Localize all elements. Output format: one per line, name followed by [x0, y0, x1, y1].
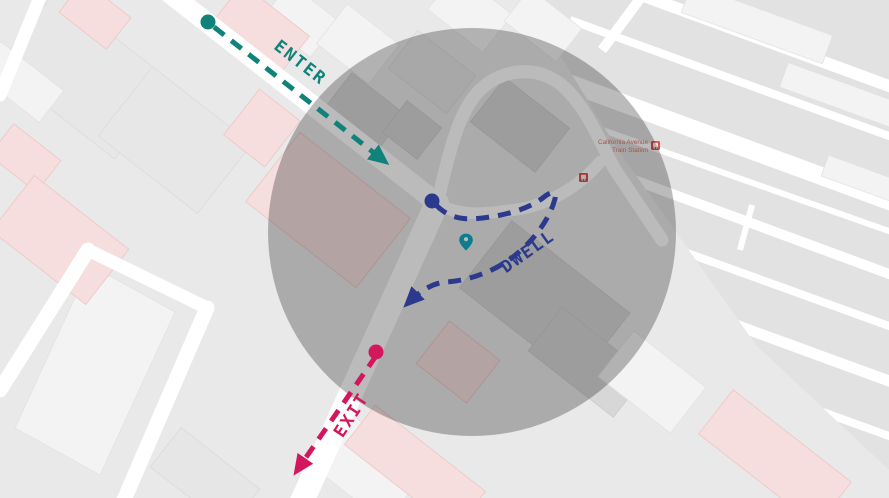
map-canvas: California Avenue Train Station ENTER DW…: [0, 0, 889, 498]
exit-start-dot: [369, 345, 384, 360]
enter-start-dot: [201, 15, 216, 30]
dwell-start-dot: [425, 194, 440, 209]
map-svg: California Avenue Train Station ENTER DW…: [0, 0, 889, 498]
geofence-overlay: [268, 28, 676, 436]
